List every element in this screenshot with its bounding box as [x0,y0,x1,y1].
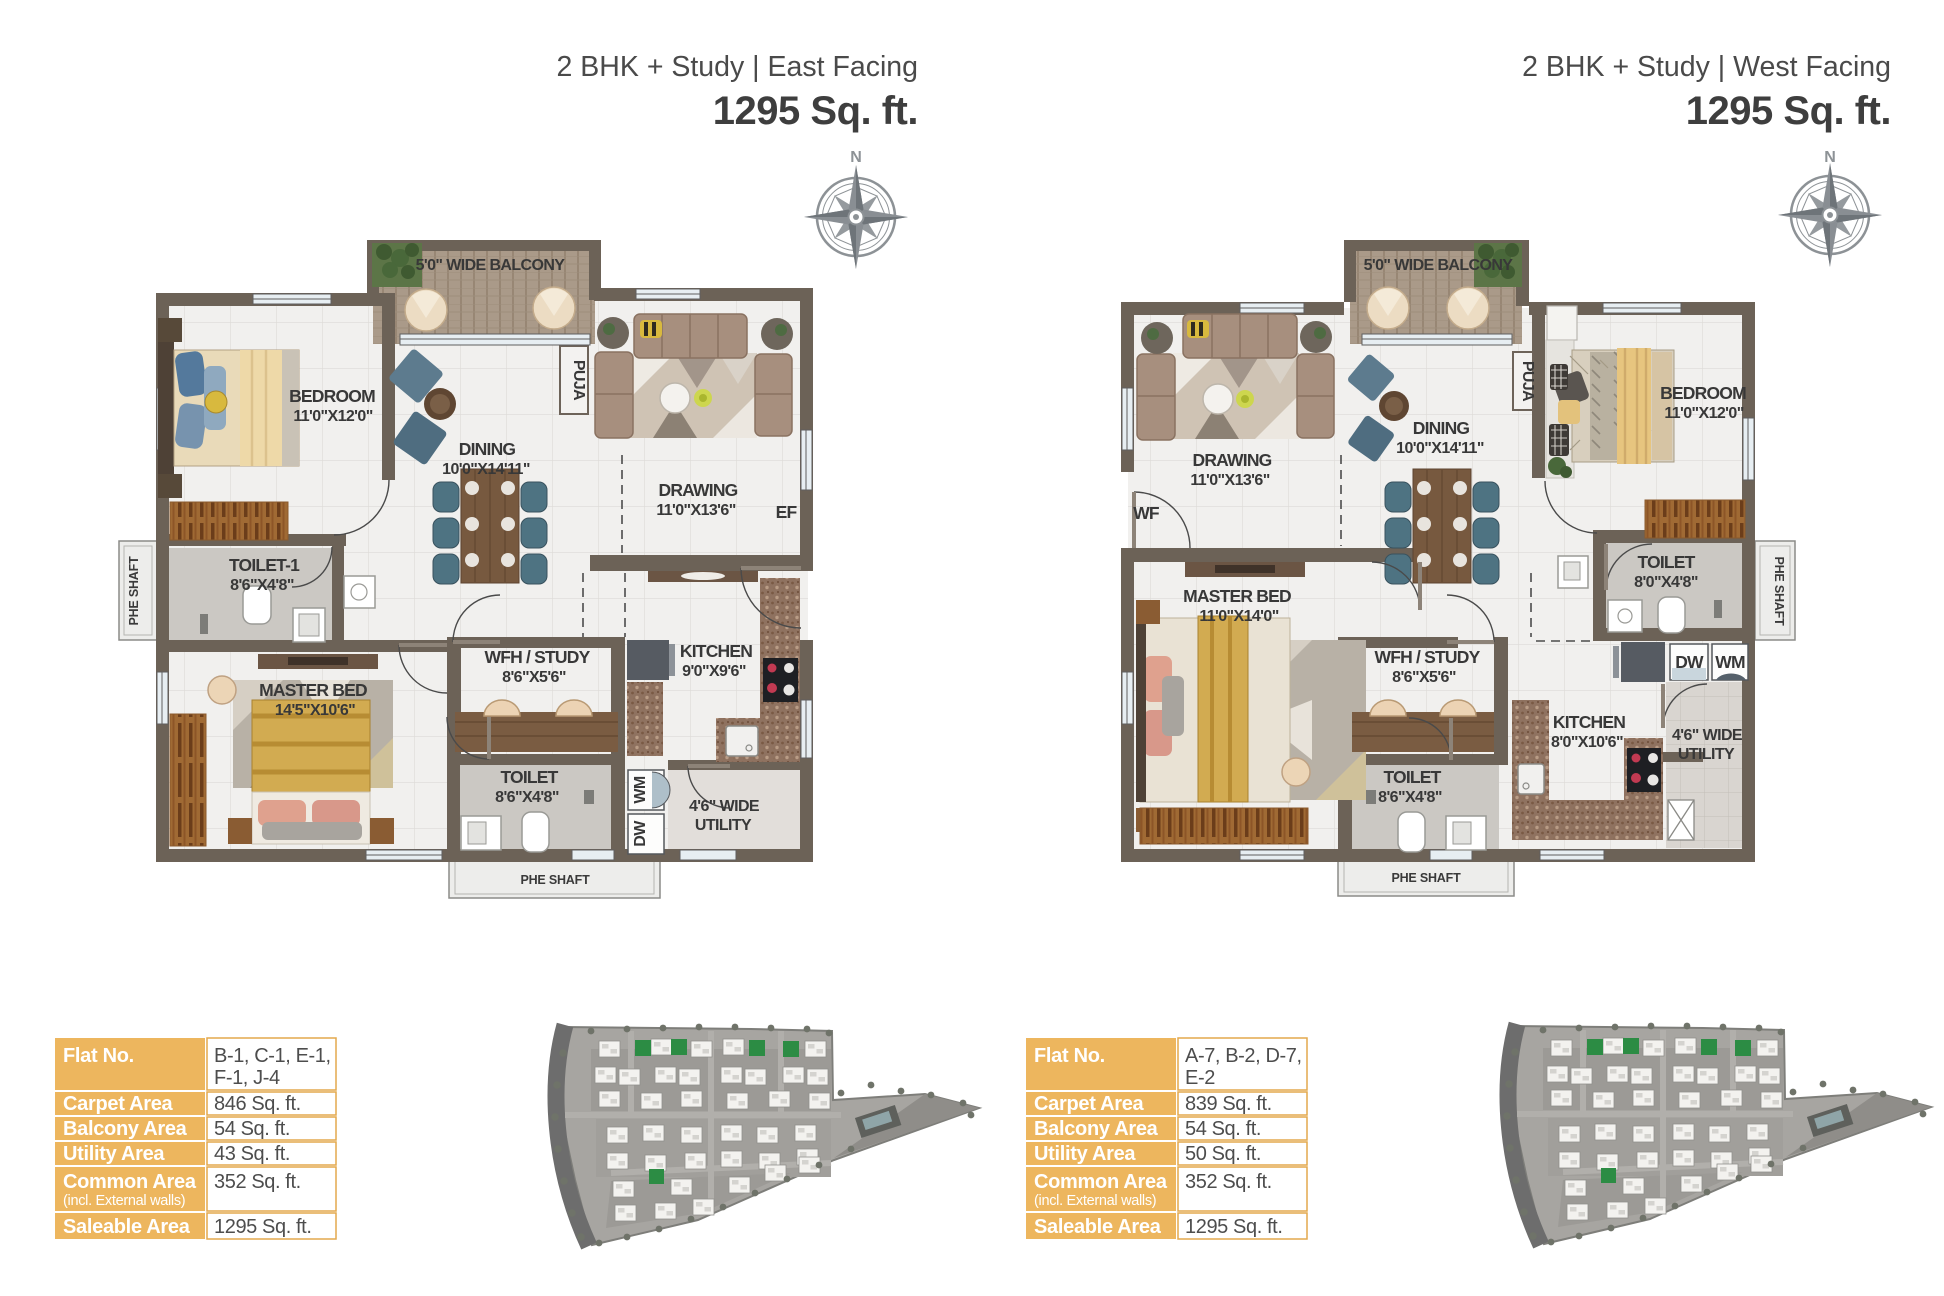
svg-text:TOILET: TOILET [500,767,558,787]
svg-text:10'0"X14'11": 10'0"X14'11" [442,461,530,478]
svg-text:50 Sq. ft.: 50 Sq. ft. [1185,1143,1261,1165]
svg-text:11'0"X13'6": 11'0"X13'6" [1190,472,1269,489]
svg-text:Carpet Area: Carpet Area [63,1093,174,1115]
svg-text:Common Area: Common Area [1034,1171,1168,1193]
svg-text:Utility Area: Utility Area [63,1143,165,1165]
svg-text:UTILITY: UTILITY [1678,746,1735,763]
svg-text:E-2: E-2 [1185,1067,1215,1089]
svg-text:TOILET: TOILET [1383,767,1441,787]
svg-text:1295 Sq. ft.: 1295 Sq. ft. [713,89,918,133]
svg-text:54 Sq. ft.: 54 Sq. ft. [214,1118,290,1140]
svg-text:WM: WM [1715,652,1745,672]
svg-text:11'0"X12'0": 11'0"X12'0" [293,408,372,425]
svg-text:11'0"X13'6": 11'0"X13'6" [656,502,735,519]
svg-text:54 Sq. ft.: 54 Sq. ft. [1185,1118,1261,1140]
svg-text:Utility Area: Utility Area [1034,1143,1136,1165]
svg-text:Common Area: Common Area [63,1171,197,1193]
svg-text:8'6"X5'6": 8'6"X5'6" [502,669,566,686]
svg-text:4'6" WIDE: 4'6" WIDE [689,798,760,815]
svg-text:N: N [850,149,862,166]
svg-text:1295 Sq. ft.: 1295 Sq. ft. [1686,89,1891,133]
svg-text:PHE SHAFT: PHE SHAFT [1772,556,1786,626]
svg-text:Carpet Area: Carpet Area [1034,1093,1145,1115]
svg-text:WM: WM [632,776,649,804]
svg-text:8'6"X4'8": 8'6"X4'8" [495,789,559,806]
svg-text:F-1, J-4: F-1, J-4 [214,1067,280,1089]
svg-text:Flat No.: Flat No. [63,1045,134,1067]
svg-text:11'0"X14'0": 11'0"X14'0" [1199,608,1278,625]
svg-text:WFH / STUDY: WFH / STUDY [1375,647,1481,667]
svg-text:1295 Sq. ft.: 1295 Sq. ft. [1185,1216,1283,1238]
svg-text:5'0" WIDE BALCONY: 5'0" WIDE BALCONY [416,257,566,274]
svg-text:2 BHK + Study | West Facing: 2 BHK + Study | West Facing [1522,51,1891,83]
svg-text:EF: EF [776,502,798,522]
svg-text:839 Sq. ft.: 839 Sq. ft. [1185,1093,1272,1115]
svg-text:5'0" WIDE BALCONY: 5'0" WIDE BALCONY [1364,257,1514,274]
svg-text:DW: DW [1675,652,1704,672]
svg-text:11'0"X12'0": 11'0"X12'0" [1664,405,1743,422]
svg-text:WFH / STUDY: WFH / STUDY [485,647,591,667]
svg-text:BEDROOM: BEDROOM [1660,383,1746,403]
svg-text:8'6"X4'8": 8'6"X4'8" [1378,789,1442,806]
svg-text:8'6"X4'8": 8'6"X4'8" [230,577,294,594]
svg-text:TOILET-1: TOILET-1 [229,555,300,575]
svg-text:DW: DW [632,820,649,847]
svg-text:DRAWING: DRAWING [1193,450,1272,470]
svg-text:1295 Sq. ft.: 1295 Sq. ft. [214,1216,312,1238]
svg-text:Flat No.: Flat No. [1034,1045,1105,1067]
svg-text:PUJA: PUJA [1519,361,1536,402]
svg-text:KITCHEN: KITCHEN [1553,712,1625,732]
svg-text:A-7, B-2, D-7,: A-7, B-2, D-7, [1185,1045,1302,1067]
svg-text:WF: WF [1133,503,1160,523]
svg-text:9'0"X9'6": 9'0"X9'6" [682,663,746,680]
svg-text:4'6" WIDE: 4'6" WIDE [1672,727,1743,744]
svg-text:2 BHK + Study | East Facing: 2 BHK + Study | East Facing [557,51,918,83]
svg-text:43 Sq. ft.: 43 Sq. ft. [214,1143,290,1165]
svg-text:(incl. External walls): (incl. External walls) [1034,1193,1156,1209]
svg-text:Balcony Area: Balcony Area [63,1118,188,1140]
svg-text:(incl. External walls): (incl. External walls) [63,1193,185,1209]
svg-text:Saleable Area: Saleable Area [63,1216,191,1238]
svg-text:PHE SHAFT: PHE SHAFT [1391,871,1461,885]
svg-text:14'5"X10'6": 14'5"X10'6" [275,702,355,719]
svg-text:B-1, C-1, E-1,: B-1, C-1, E-1, [214,1045,331,1067]
svg-text:PHE SHAFT: PHE SHAFT [520,873,590,887]
svg-text:Balcony Area: Balcony Area [1034,1118,1159,1140]
svg-text:Saleable Area: Saleable Area [1034,1216,1162,1238]
svg-text:BEDROOM: BEDROOM [289,386,375,406]
svg-text:MASTER BED: MASTER BED [259,680,367,700]
svg-text:846 Sq. ft.: 846 Sq. ft. [214,1093,301,1115]
svg-text:8'6"X5'6": 8'6"X5'6" [1392,669,1456,686]
svg-text:TOILET: TOILET [1637,552,1695,572]
svg-text:352 Sq. ft.: 352 Sq. ft. [1185,1171,1272,1193]
svg-text:DRAWING: DRAWING [659,480,738,500]
svg-text:MASTER BED: MASTER BED [1183,586,1291,606]
svg-text:10'0"X14'11": 10'0"X14'11" [1396,440,1484,457]
svg-text:PHE SHAFT: PHE SHAFT [127,556,141,626]
svg-text:KITCHEN: KITCHEN [680,641,752,661]
svg-text:8'0"X10'6": 8'0"X10'6" [1551,734,1623,751]
svg-text:DINING: DINING [459,439,516,459]
svg-text:UTILITY: UTILITY [695,817,752,834]
svg-text:8'0"X4'8": 8'0"X4'8" [1634,574,1698,591]
svg-text:352 Sq. ft.: 352 Sq. ft. [214,1171,301,1193]
svg-text:DINING: DINING [1413,418,1470,438]
svg-text:PUJA: PUJA [570,360,587,401]
